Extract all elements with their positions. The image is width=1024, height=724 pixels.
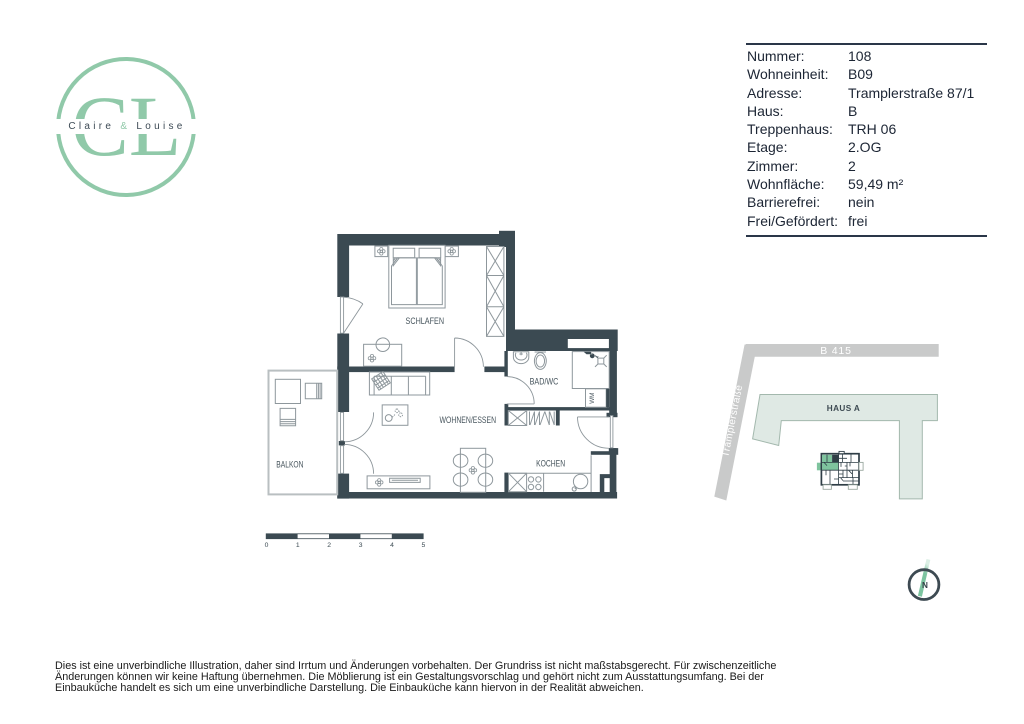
svg-text:3: 3	[359, 542, 363, 549]
svg-text:5: 5	[422, 542, 426, 549]
svg-text:4: 4	[390, 542, 394, 549]
svg-text:N: N	[922, 581, 928, 590]
svg-text:0: 0	[265, 542, 269, 549]
svg-text:BAD/WC: BAD/WC	[530, 376, 559, 387]
svg-text:HAUS A: HAUS A	[827, 404, 860, 413]
svg-text:WM: WM	[589, 393, 596, 404]
svg-text:1: 1	[296, 542, 300, 549]
svg-text:WOHNEN/ESSEN: WOHNEN/ESSEN	[440, 414, 497, 425]
svg-text:2: 2	[327, 542, 331, 549]
svg-text:SCHLAFEN: SCHLAFEN	[406, 315, 445, 326]
svg-text:KOCHEN: KOCHEN	[536, 457, 565, 468]
svg-text:B 415: B 415	[820, 345, 851, 357]
svg-text:BALKON: BALKON	[276, 459, 303, 470]
